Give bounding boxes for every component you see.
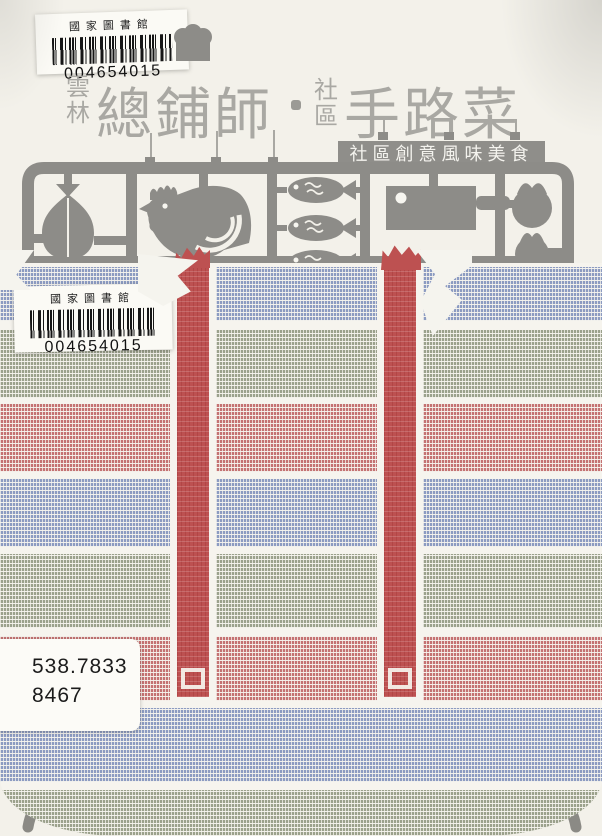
stripe-band-green [0, 790, 602, 836]
meat-cut-icon [30, 172, 128, 259]
barcode-number: 004654015 [14, 336, 172, 357]
tomato-icon [505, 183, 552, 228]
sprue-connector-foot [510, 132, 520, 140]
title-mid-char1: 社 [311, 78, 341, 104]
barcode-icon [30, 308, 157, 339]
title-separator-dot [291, 100, 301, 110]
woven-bag-cover: 國家圖書館 004654015 538.7833 8467 [0, 263, 602, 836]
bag-strap-right [377, 263, 423, 704]
stripe-band-green [0, 554, 602, 628]
call-number-line1: 538.7833 [32, 652, 140, 681]
bag-strap-left [170, 263, 216, 704]
sprue-connector-foot [378, 132, 388, 140]
library-name: 國家圖書館 [35, 9, 188, 35]
barcode-icon [52, 34, 173, 65]
book-cover-scan: { "labels": { "top_barcode": { "library"… [0, 0, 602, 836]
title-region-char2: 林 [63, 101, 93, 127]
call-number-line2: 8467 [32, 681, 140, 710]
model-kit-sprue-frame [0, 154, 602, 270]
title-main-left: 總鋪師 [96, 70, 273, 151]
cleaver-icon [386, 168, 510, 230]
title-mid-char2: 區 [311, 104, 341, 130]
chef-hat-icon [170, 23, 216, 63]
stripe-band-red [0, 404, 602, 472]
library-barcode-label-top: 國家圖書館 004654015 [35, 9, 189, 74]
sprue-connector-foot [444, 132, 454, 140]
title-main-right: 手路菜 [344, 70, 521, 151]
stripe-band-blue [0, 479, 602, 547]
fish-icon [277, 215, 362, 241]
title-mid-column: 社 區 [311, 78, 341, 130]
title-region-column: 雲 林 [63, 75, 93, 127]
fish-icon [277, 177, 362, 203]
title-region-char1: 雲 [63, 75, 93, 101]
call-number-label: 538.7833 8467 [0, 639, 140, 731]
